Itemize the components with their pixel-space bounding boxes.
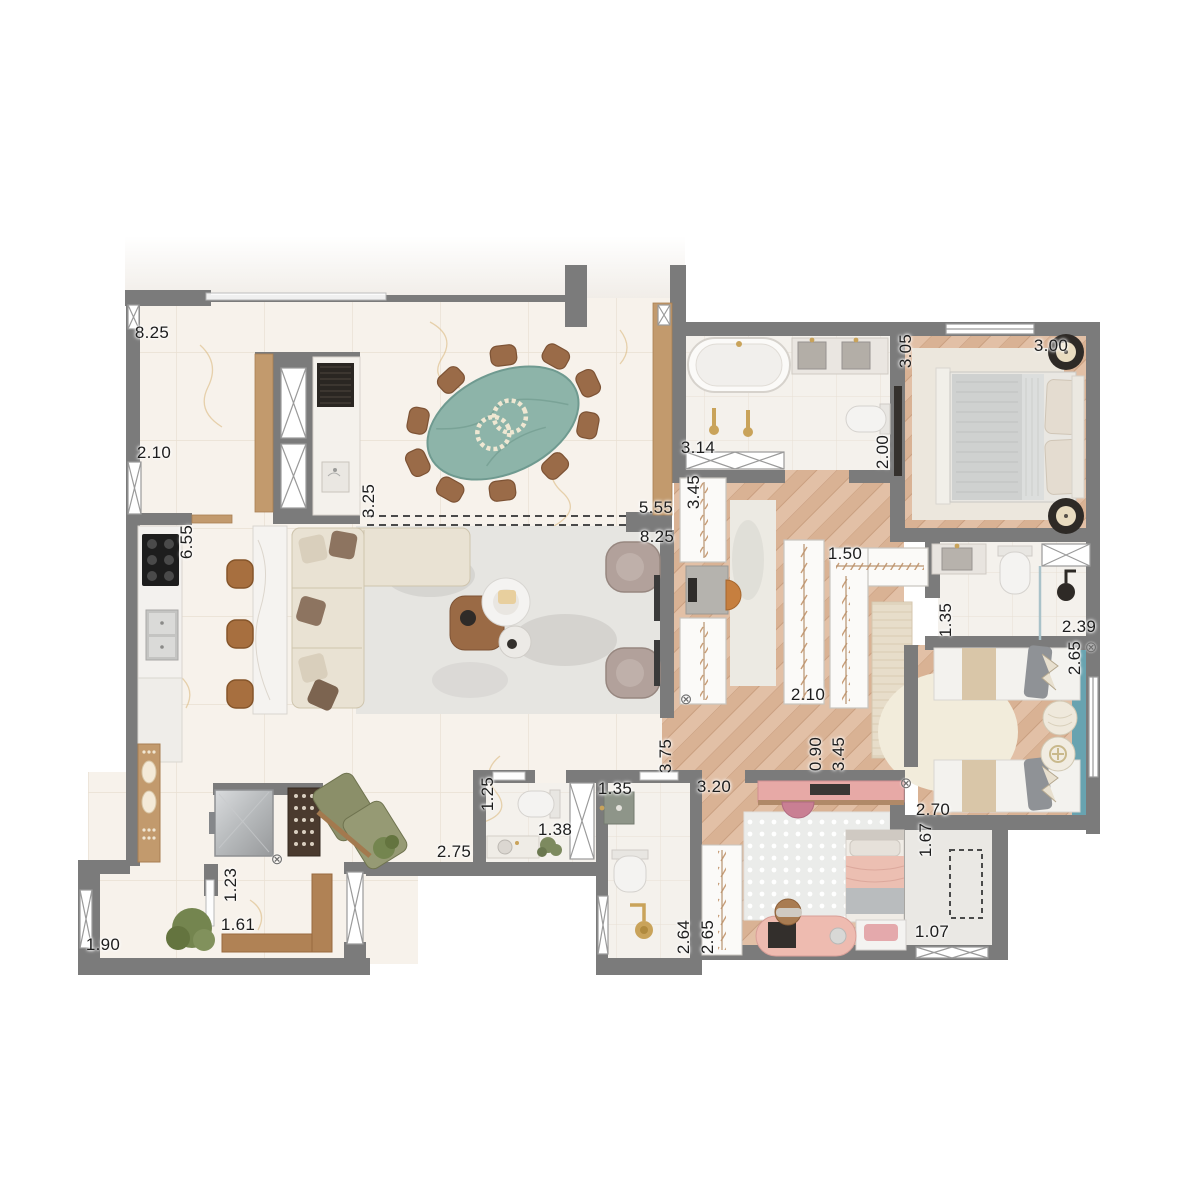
circle-x-icon: ⊗ (900, 774, 913, 792)
dimension-label: 2.65 (1065, 641, 1085, 675)
dimension-label: 2.70 (916, 800, 950, 820)
floor-plan: 8.252.106.553.255.558.253.143.452.003.05… (0, 0, 1200, 1200)
dimension-label: 1.35 (936, 603, 956, 637)
dimension-label: 1.50 (828, 544, 862, 564)
dimension-label: 3.45 (684, 475, 704, 509)
dimension-label: 1.35 (598, 779, 632, 799)
dimension-label: 3.05 (896, 334, 916, 368)
dimension-labels-layer: 8.252.106.553.255.558.253.143.452.003.05… (0, 0, 1200, 1200)
dimension-label: 3.00 (1034, 336, 1068, 356)
dimension-label: 3.20 (697, 777, 731, 797)
circle-x-icon: ⊗ (1085, 638, 1098, 656)
dimension-label: 2.64 (674, 920, 694, 954)
circle-x-icon: ⊗ (271, 850, 284, 868)
dimension-label: 8.25 (640, 527, 674, 547)
dimension-label: 2.39 (1062, 617, 1096, 637)
dimension-label: 1.90 (86, 935, 120, 955)
dimension-label: 2.75 (437, 842, 471, 862)
dimension-label: 3.75 (656, 739, 676, 773)
dimension-label: 8.25 (135, 323, 169, 343)
dimension-label: 1.07 (915, 922, 949, 942)
dimension-label: 2.00 (873, 435, 893, 469)
dimension-label: 2.10 (137, 443, 171, 463)
dimension-label: 1.38 (538, 820, 572, 840)
dimension-label: 1.23 (221, 868, 241, 902)
dimension-label: 3.25 (359, 484, 379, 518)
dimension-label: 3.45 (829, 737, 849, 771)
dimension-label: 1.25 (478, 777, 498, 811)
dimension-label: 3.14 (681, 438, 715, 458)
dimension-label: 5.55 (639, 498, 673, 518)
dimension-label: 1.67 (916, 823, 936, 857)
dimension-label: 2.65 (698, 920, 718, 954)
dimension-label: 2.10 (791, 685, 825, 705)
circle-x-icon: ⊗ (680, 690, 693, 708)
dimension-label: 0.90 (806, 737, 826, 771)
dimension-label: 6.55 (177, 525, 197, 559)
dimension-label: 1.61 (221, 915, 255, 935)
